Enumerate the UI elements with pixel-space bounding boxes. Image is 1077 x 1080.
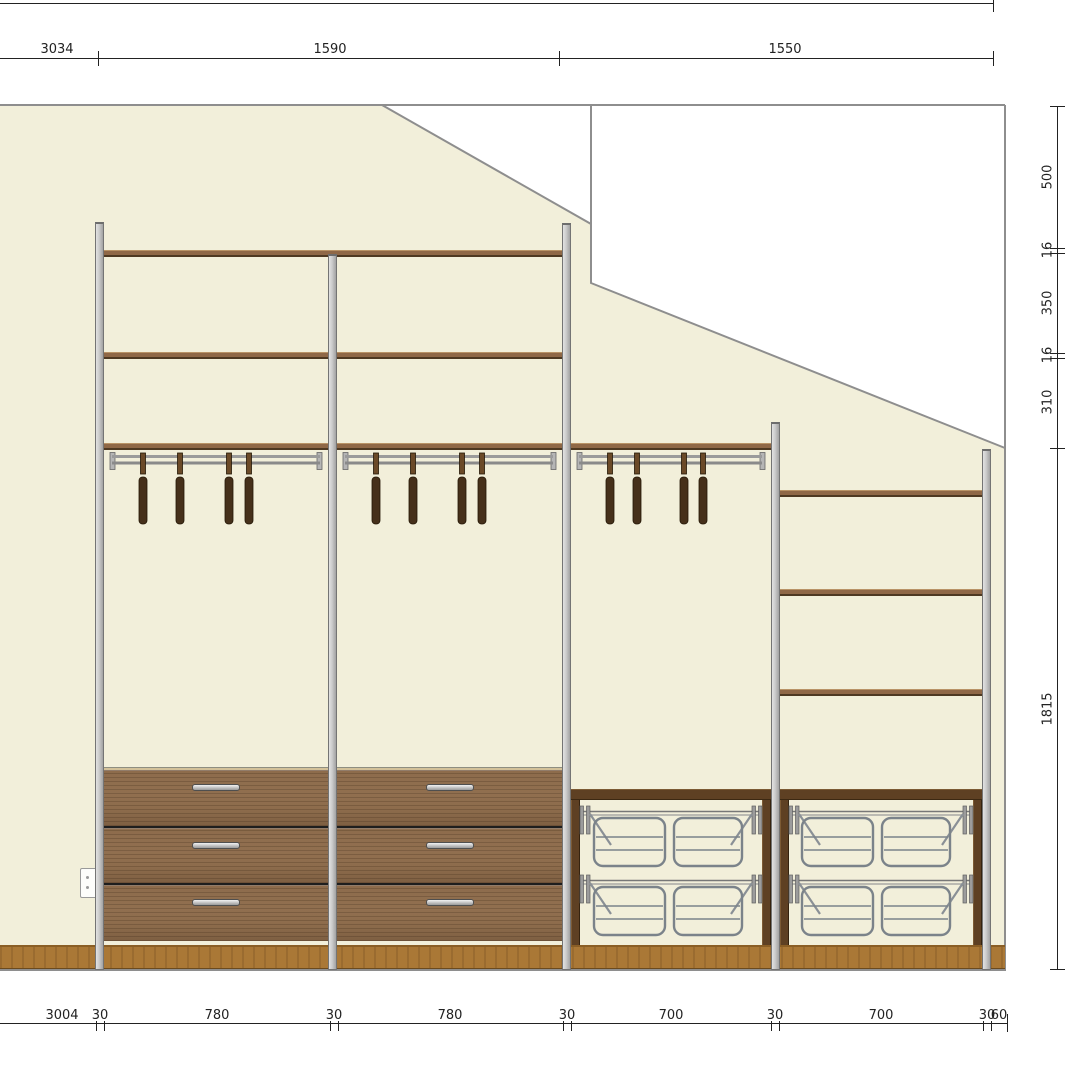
dimension-tick [98, 51, 99, 66]
dimension-tick [993, 0, 994, 12]
dim-label: 500 [1042, 165, 1055, 190]
wire-shoe-rack [580, 875, 762, 935]
dimension-line-top [0, 58, 993, 59]
wire-shoe-rack [789, 806, 973, 866]
dim-label: 780 [205, 1009, 230, 1022]
dim-label: 700 [869, 1009, 894, 1022]
dimension-tick [1050, 448, 1065, 449]
wardrobe-elevation-drawing: 3034 1590 1550 500 16 350 16 310 1815 30… [0, 0, 1077, 1080]
wire-shoe-rack [789, 875, 973, 935]
dim-label: 30 [767, 1009, 784, 1022]
dim-label: 16 [1042, 242, 1055, 259]
dim-label: 16 [1042, 347, 1055, 364]
dim-label: 60 [991, 1009, 1008, 1022]
dim-label: 30 [92, 1009, 109, 1022]
dim-label: 3004 [45, 1009, 78, 1022]
dim-label: 1550 [768, 43, 801, 56]
dim-label: 700 [659, 1009, 684, 1022]
dim-label: 30 [559, 1009, 576, 1022]
dim-label: 310 [1042, 390, 1055, 415]
dimension-tick [1050, 969, 1065, 970]
wire-shoe-rack [580, 806, 762, 866]
dimension-tick [559, 51, 560, 66]
dim-label: 30 [326, 1009, 343, 1022]
clothes-rail [577, 453, 765, 470]
dimension-line-overall [0, 3, 993, 4]
dim-label: 1590 [313, 43, 346, 56]
dimension-tick [1050, 106, 1065, 107]
dim-label: 350 [1042, 291, 1055, 316]
hardware-overlay [0, 0, 1077, 1080]
dimension-line-bottom [0, 1023, 1007, 1024]
dimension-tick [993, 51, 994, 66]
dim-label: 780 [438, 1009, 463, 1022]
dim-label: 3034 [40, 43, 73, 56]
dimension-line-right [1057, 106, 1058, 970]
dim-label: 1815 [1042, 692, 1055, 725]
